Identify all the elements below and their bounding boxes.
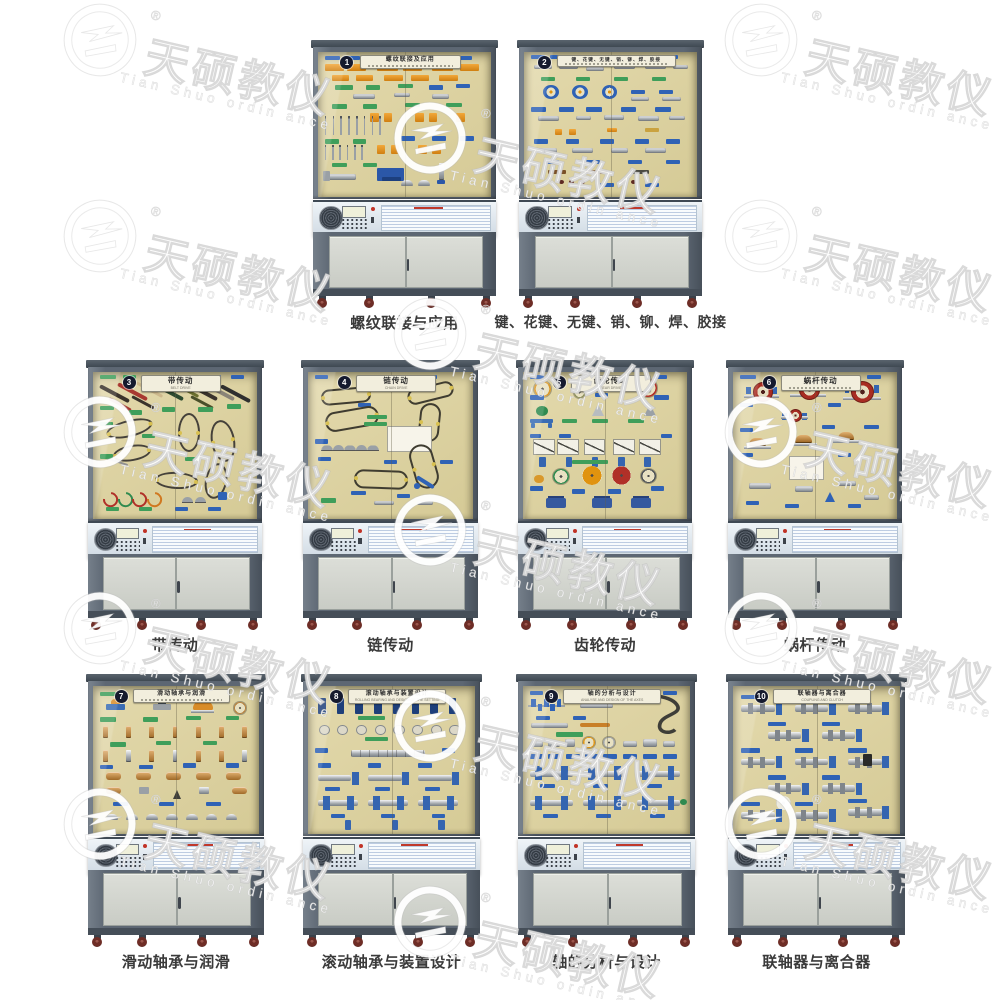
plaque-title: 带传动 [145,377,217,386]
panel-button[interactable] [358,538,362,544]
cabinet-door-right[interactable] [176,557,249,609]
title-plaque: 螺纹联接及应用 [360,55,461,69]
display-board: 2键、花键、无键、销、铆、焊、胶接 [524,52,697,197]
lower-cabinet [303,554,478,618]
caster-wheel [778,935,789,947]
cabinet-caption: 轴的分析与设计 [552,951,661,972]
display-cabinet-9: 9轴的分析与设计ANALYSE AND DESIGN OF THE AXES轴的… [518,674,695,947]
caster-wheel [197,935,208,947]
description-sheet [587,205,698,231]
caster-wheel [890,935,901,947]
panel-button-red[interactable] [143,844,147,848]
cabinet-caption: 键、花键、无键、销、铆、焊、胶接 [495,312,727,332]
glass-reflection [308,372,473,519]
number-badge: 6 [763,376,776,389]
display-window: 10联轴器与离合器COUPLING AND CLUTCH [728,681,905,836]
panel-button-red[interactable] [371,207,375,211]
caster-wheel [92,935,103,947]
panel-button-red[interactable] [783,529,787,533]
caster-wheel [91,618,102,630]
sheet-heading-line [620,207,648,209]
registered-mark: ® [479,889,492,906]
control-panel [303,521,478,557]
caster-wheel [412,618,423,630]
brand-logo-icon [52,0,148,88]
caster-wheel [836,618,847,630]
caster-wheel [626,618,637,630]
caster-wheel [137,935,148,947]
caster-tyre [353,937,363,947]
brand-name-en: Tian Shuo ordin ance [780,70,996,134]
caster-tyre [307,937,317,947]
cabinet-door-left[interactable] [318,557,392,609]
display-window: 5齿轮传动GEAR DRIVE [518,367,692,521]
caster-tyre [838,937,848,947]
number-badge: 5 [553,376,566,389]
brand-name-cn: 天硕教仪 [800,218,1000,324]
caster-tyre [687,298,697,308]
glass-reflection [523,372,687,519]
caster-wheel [413,935,424,947]
plaque-subtitle: GEAR DRIVE [575,386,647,390]
caster-wheel [732,935,743,947]
caster-tyre [680,937,690,947]
caster-tyre [481,298,491,308]
cabinet-caption: 联轴器与离合器 [762,951,871,972]
watermark-tile: ®天硕教仪Tian Shuo ordin ance [46,0,577,214]
cabinet-caption: 滚动轴承与装置设计 [322,951,462,972]
caster-wheel [352,618,363,630]
display-cabinet-1: 1螺纹联接及应用螺纹联接与应用 [313,40,496,308]
cabinet-caption: 链传动 [367,634,414,655]
display-window: 1螺纹联接及应用 [313,47,496,199]
panel-button[interactable] [143,538,147,544]
caster-tyre [890,937,900,947]
caster-tyre [570,298,580,308]
door-handle[interactable] [407,259,410,271]
registered-mark: ® [479,497,492,514]
caster-wheel [248,618,259,630]
caster-wheel [522,935,533,947]
caster-tyre [137,620,147,630]
title-plaque: 带传动BELT DRIVE [141,375,221,392]
plaque-subtitle-line [789,387,853,389]
cabinet-door-right[interactable] [606,557,679,609]
door-handle[interactable] [607,581,610,593]
panel-button-red[interactable] [358,529,362,533]
display-board: 6蜗杆传动 [733,372,897,519]
description-sheet [153,842,260,869]
sheet-heading-line [616,844,643,846]
speaker-grille-icon [309,844,333,868]
caster-wheel [521,618,532,630]
display-board: 7滑动轴承与润滑 [93,686,259,834]
door-handle[interactable] [819,897,822,909]
sheet-heading-line [824,529,851,531]
caster-wheel [888,618,899,630]
display-cabinet-5: 5齿轮传动GEAR DRIVE齿轮传动 [518,360,692,630]
panel-display [756,844,779,856]
caster-tyre [522,937,532,947]
caster-tyre [523,298,533,308]
panel-keypad[interactable] [115,540,140,552]
cabinet-door-left[interactable] [743,873,818,926]
panel-keypad[interactable] [547,218,574,230]
door-handle[interactable] [394,897,397,909]
cabinet-door-right[interactable] [393,873,468,926]
speaker-grille-icon [734,528,757,551]
panel-keypad[interactable] [755,540,780,552]
panel-keypad[interactable] [330,540,355,552]
plaque-subtitle-line [368,65,453,67]
brand-logo-icon [713,188,809,284]
caster-wheel [570,296,581,308]
control-panel [518,521,692,557]
caster-wheel [680,935,691,947]
caster-tyre [412,620,422,630]
caster-tyre [567,620,577,630]
panel-display [331,844,354,856]
number-badge: 8 [330,690,343,703]
cabinet-caption: 螺纹联接与应用 [350,312,459,333]
control-panel [518,837,695,874]
cabinet-door-left[interactable] [535,236,612,288]
cabinet-door-right[interactable] [612,236,689,288]
description-sheet [583,842,690,869]
lower-cabinet [88,870,264,935]
cabinet-base [518,928,695,935]
caster-tyre [568,937,578,947]
plaque-title: 蜗杆传动 [785,377,857,386]
glass-reflection [733,372,897,519]
title-plaque: 滑动轴承与润滑 [133,689,231,703]
cabinet-base [518,611,692,618]
panel-button-red[interactable] [577,207,581,211]
description-sheet [368,526,474,552]
panel-keypad[interactable] [545,856,571,868]
product-catalog-image: 1螺纹联接及应用螺纹联接与应用2键、花键、无键、销、铆、焊、胶接键、花键、无键、… [0,0,1000,1000]
description-sheet [381,205,492,231]
lower-cabinet [728,554,902,618]
display-window: 9轴的分析与设计ANALYSE AND DESIGN OF THE AXES [518,681,695,836]
plaque-subtitle-line [565,63,668,65]
cabinet-base [303,611,478,618]
caster-tyre [196,620,206,630]
panel-display [546,528,569,540]
display-cabinet-2: 2键、花键、无键、销、铆、焊、胶接键、花键、无键、销、铆、焊、胶接 [519,40,702,308]
number-badge: 2 [538,56,551,69]
caster-wheel [523,296,534,308]
panel-button-red[interactable] [574,844,578,848]
panel-display [342,206,366,218]
caster-tyre [464,620,474,630]
display-window: 4链传动CHAIN DRIVE [303,367,478,521]
panel-keypad[interactable] [330,856,356,868]
glass-reflection [308,686,475,834]
display-window: 3带传动BELT DRIVE [88,367,262,521]
caster-wheel [307,935,318,947]
caster-wheel [628,935,639,947]
cabinet-door-left[interactable] [533,873,608,926]
registered-mark: ® [810,203,823,220]
display-board: 4链传动CHAIN DRIVE [308,372,473,519]
brand-name-cn: 天硕教仪 [800,22,1000,128]
description-sheet [152,526,257,552]
caster-tyre [426,298,436,308]
caster-tyre [628,937,638,947]
cabinet-base [728,611,902,618]
description-sheet [368,842,475,869]
door-handle[interactable] [393,581,396,593]
panel-display [331,528,354,540]
caster-wheel [632,296,643,308]
glass-reflection [523,686,690,834]
cabinet-door-right[interactable] [816,557,889,609]
control-panel [313,200,496,236]
cabinet-door-right[interactable] [608,873,683,926]
display-board: 10联轴器与离合器COUPLING AND CLUTCH [733,686,900,834]
caster-tyre [364,298,374,308]
speaker-grille-icon [319,206,342,229]
plaque-subtitle: ANALYSE AND DESIGN OF THE AXES [567,698,657,702]
plaque-title: 滚动轴承与装置设计 [352,691,442,698]
display-window: 7滑动轴承与润滑 [88,681,264,836]
caster-tyre [778,937,788,947]
cabinet-caption: 带传动 [152,634,199,655]
brand-name-cn: 天硕教仪 [139,218,340,324]
speaker-grille-icon [525,206,548,229]
caster-wheel [196,618,207,630]
plaque-title: 联轴器与离合器 [777,691,867,698]
caster-tyre [197,937,207,947]
glass-reflection [93,372,257,519]
cabinet-base [88,611,262,618]
brand-name-en: Tian Shuo ordin ance [119,266,335,330]
panel-button-red[interactable] [573,529,577,533]
caster-tyre [632,298,642,308]
registered-mark: ® [479,693,492,710]
caster-tyre [836,620,846,630]
title-plaque: 滚动轴承与装置设计ROLLING BEARING AND DESIGN OF T… [348,689,446,704]
caster-wheel [317,296,328,308]
description-sheet [792,526,897,552]
caster-tyre [888,620,898,630]
glass-reflection [733,686,900,834]
description-sheet [793,842,900,869]
control-panel [88,521,262,557]
caster-tyre [521,620,531,630]
caster-wheel [567,618,578,630]
number-badge: 10 [755,690,768,703]
panel-button[interactable] [574,854,578,860]
title-plaque: 轴的分析与设计ANALYSE AND DESIGN OF THE AXES [563,689,661,704]
panel-button-red[interactable] [359,844,363,848]
glass-reflection [93,686,259,834]
caster-wheel [838,935,849,947]
lower-cabinet [519,232,702,296]
display-cabinet-3: 3带传动BELT DRIVE带传动 [88,360,262,630]
brand-name-cn: 天硕教仪 [139,22,340,128]
cabinet-door-right[interactable] [818,873,893,926]
caster-tyre [731,620,741,630]
lower-cabinet [728,870,905,935]
cabinet-base [313,289,496,296]
caster-wheel [464,618,475,630]
caster-wheel [307,618,318,630]
caster-tyre [137,937,147,947]
display-cabinet-4: 4链传动CHAIN DRIVE链传动 [303,360,478,630]
speaker-grille-icon [94,844,118,868]
door-handle[interactable] [609,897,612,909]
caster-tyre [777,620,787,630]
caster-wheel [678,618,689,630]
title-plaque: 链传动CHAIN DRIVE [356,375,437,392]
panel-button[interactable] [783,538,787,544]
brand-logo-icon [52,188,148,284]
caster-tyre [626,620,636,630]
caster-tyre [248,620,258,630]
panel-display [116,844,139,856]
lower-cabinet [518,554,692,618]
plaque-subtitle-line [141,699,223,701]
title-plaque: 蜗杆传动 [781,375,861,391]
cabinet-door-left[interactable] [103,557,176,609]
cabinet-door-left[interactable] [318,873,393,926]
cabinet-door-left[interactable] [329,236,406,288]
caster-tyre [413,937,423,947]
display-window: 2键、花键、无键、销、铆、焊、胶接 [519,47,702,199]
control-panel [728,837,905,874]
caster-wheel [465,935,476,947]
caster-wheel [426,296,437,308]
control-panel [728,521,902,557]
title-plaque: 联轴器与离合器COUPLING AND CLUTCH [773,689,871,704]
caster-tyre [307,620,317,630]
plaque-title: 齿轮传动 [575,377,647,386]
registered-mark: ® [149,7,162,24]
caster-wheel [481,296,492,308]
title-plaque: 齿轮传动GEAR DRIVE [571,375,651,392]
lower-cabinet [518,870,695,935]
cabinet-door-left[interactable] [533,557,606,609]
door-handle[interactable] [177,581,180,593]
panel-display [756,528,779,540]
watermark-tile: ®天硕教仪Tian Shuo ordin ance [707,0,1000,214]
plaque-title: 链传动 [360,377,433,386]
plaque-subtitle: ROLLING BEARING AND DESIGN OF THE SETTIN… [352,698,442,702]
number-badge: 7 [115,690,128,703]
brand-name-en: Tian Shuo ordin ance [119,70,335,134]
panel-button[interactable] [143,854,147,860]
plaque-title: 螺纹联接及应用 [364,57,457,64]
panel-button[interactable] [371,217,375,223]
caster-wheel [777,618,788,630]
caster-tyre [678,620,688,630]
display-board: 1螺纹联接及应用 [318,52,491,197]
panel-keypad[interactable] [545,540,570,552]
panel-keypad[interactable] [341,218,368,230]
display-board: 8滚动轴承与装置设计ROLLING BEARING AND DESIGN OF … [308,686,475,834]
caster-tyre [92,937,102,947]
plaque-subtitle: CHAIN DRIVE [360,386,433,390]
lower-cabinet [313,232,496,296]
plaque-title: 轴的分析与设计 [567,691,657,698]
cabinet-base [303,928,480,935]
display-cabinet-6: 6蜗杆传动蜗杆传动 [728,360,902,630]
cabinet-door-right[interactable] [406,236,483,288]
cabinet-door-right[interactable] [392,557,466,609]
cabinet-door-left[interactable] [103,873,177,926]
cabinet-base [728,928,905,935]
caster-wheel [731,618,742,630]
cabinet-caption: 齿轮传动 [574,634,636,655]
panel-button-red[interactable] [784,844,788,848]
lower-cabinet [88,554,262,618]
control-panel [519,200,702,236]
door-handle[interactable] [817,581,820,593]
panel-keypad[interactable] [115,856,141,868]
number-badge: 4 [338,376,351,389]
sheet-heading-line [400,529,427,531]
door-handle[interactable] [613,259,616,271]
display-cabinet-10: 10联轴器与离合器COUPLING AND CLUTCH联轴器与离合器 [728,674,905,947]
cabinet-door-left[interactable] [743,557,816,609]
plaque-title: 键、花键、无键、销、铆、焊、胶接 [561,57,672,62]
caster-wheel [364,296,375,308]
display-board: 5齿轮传动GEAR DRIVE [523,372,687,519]
speaker-grille-icon [524,844,548,868]
registered-mark: ® [149,203,162,220]
door-handle[interactable] [178,897,181,909]
panel-button[interactable] [573,538,577,544]
control-panel [88,837,264,874]
panel-button[interactable] [359,854,363,860]
cabinet-door-right[interactable] [177,873,251,926]
caster-tyre [732,937,742,947]
caster-wheel [137,618,148,630]
panel-display [546,844,569,856]
panel-button-red[interactable] [143,529,147,533]
sheet-heading-line [614,529,641,531]
cabinet-caption: 滑动轴承与润滑 [122,951,231,972]
speaker-grille-icon [94,528,117,551]
cabinet-caption: 蜗杆传动 [784,634,846,655]
panel-display [116,528,139,540]
number-badge: 9 [545,690,558,703]
number-badge: 3 [123,376,136,389]
panel-button[interactable] [577,217,581,223]
cabinet-base [519,289,702,296]
display-board: 9轴的分析与设计ANALYSE AND DESIGN OF THE AXES [523,686,690,834]
sheet-heading-line [184,529,211,531]
sheet-heading-line [401,844,428,846]
brand-name-en: Tian Shuo ordin ance [780,266,996,330]
plaque-subtitle: COUPLING AND CLUTCH [777,698,867,702]
display-window: 6蜗杆传动 [728,367,902,521]
panel-keypad[interactable] [755,856,781,868]
speaker-grille-icon [734,844,758,868]
display-window: 8滚动轴承与装置设计ROLLING BEARING AND DESIGN OF … [303,681,480,836]
display-cabinet-7: 7滑动轴承与润滑滑动轴承与润滑 [88,674,264,947]
caster-wheel [249,935,260,947]
panel-button[interactable] [784,854,788,860]
glass-reflection [524,52,697,197]
control-panel [303,837,480,874]
title-plaque: 键、花键、无键、销、铆、焊、胶接 [557,55,676,67]
plaque-subtitle: BELT DRIVE [145,386,217,390]
sheet-heading-line [414,207,442,209]
caster-wheel [687,296,698,308]
